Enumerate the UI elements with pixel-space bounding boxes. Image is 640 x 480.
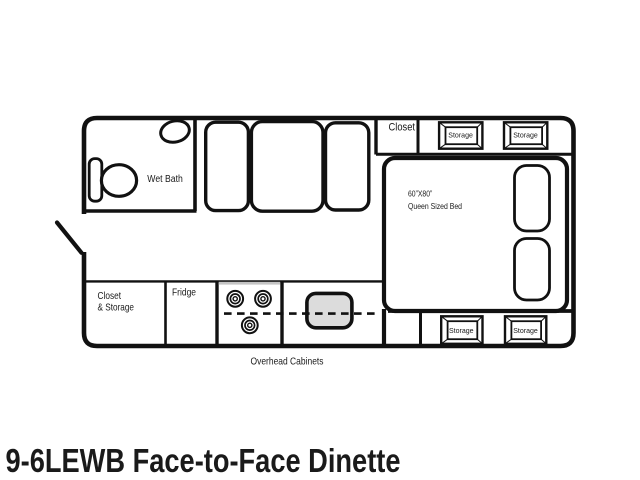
- svg-text:Closet: Closet: [389, 122, 416, 134]
- svg-text:Overhead Cabinets: Overhead Cabinets: [251, 356, 324, 368]
- svg-text:9-6LEWB Face-to-Face Dinette: 9-6LEWB Face-to-Face Dinette: [6, 442, 401, 479]
- svg-text:& Storage: & Storage: [98, 302, 135, 314]
- svg-text:Storage: Storage: [513, 326, 538, 335]
- svg-text:60”X80”: 60”X80”: [408, 189, 432, 199]
- svg-text:Wet Bath: Wet Bath: [147, 174, 183, 185]
- svg-text:Storage: Storage: [449, 326, 474, 335]
- svg-text:Fridge: Fridge: [172, 287, 196, 299]
- svg-text:Closet: Closet: [98, 290, 122, 302]
- svg-text:Queen Sized Bed: Queen Sized Bed: [408, 201, 462, 211]
- svg-text:Storage: Storage: [448, 130, 473, 139]
- svg-text:Storage: Storage: [513, 130, 538, 139]
